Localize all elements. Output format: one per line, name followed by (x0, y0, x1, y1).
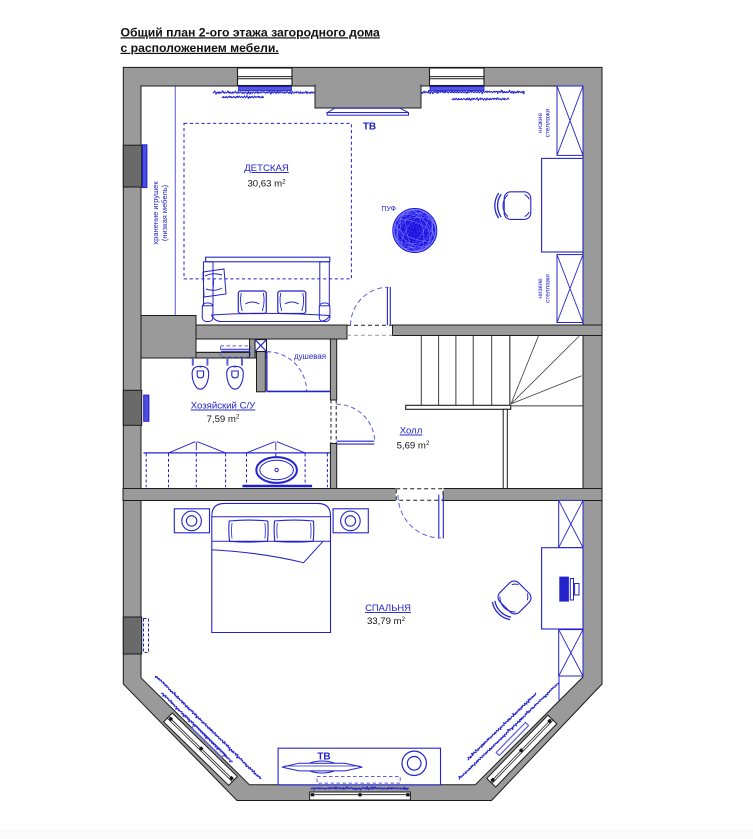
svg-text:Холл: Холл (400, 426, 423, 437)
svg-text:стеллажи: стеллажи (545, 108, 552, 137)
svg-text:Общий план 2-ого этажа загород: Общий план 2-ого этажа загородного дома (121, 25, 381, 39)
svg-text:30,63 m2: 30,63 m2 (247, 178, 286, 189)
svg-text:хранение игрушек: хранение игрушек (151, 181, 160, 245)
svg-text:низкие: низкие (537, 112, 544, 133)
svg-text:душевая: душевая (294, 352, 326, 361)
svg-text:низкие: низкие (537, 278, 544, 299)
svg-text:с расположением мебели.: с расположением мебели. (121, 41, 279, 55)
svg-text:7,59 m2: 7,59 m2 (207, 414, 240, 425)
svg-text:ДЕТСКАЯ: ДЕТСКАЯ (244, 163, 289, 174)
svg-text:33,79 m2: 33,79 m2 (367, 616, 406, 627)
svg-text:(низкая мебель): (низкая мебель) (160, 184, 169, 241)
svg-text:ТВ: ТВ (363, 122, 376, 133)
svg-text:ПУФ: ПУФ (381, 206, 396, 213)
svg-text:СПАЛЬНЯ: СПАЛЬНЯ (365, 602, 411, 613)
svg-text:стеллажи: стеллажи (545, 274, 552, 303)
svg-text:5,69 m2: 5,69 m2 (397, 440, 430, 451)
svg-text:Хозяйский С/У: Хозяйский С/У (191, 401, 256, 412)
